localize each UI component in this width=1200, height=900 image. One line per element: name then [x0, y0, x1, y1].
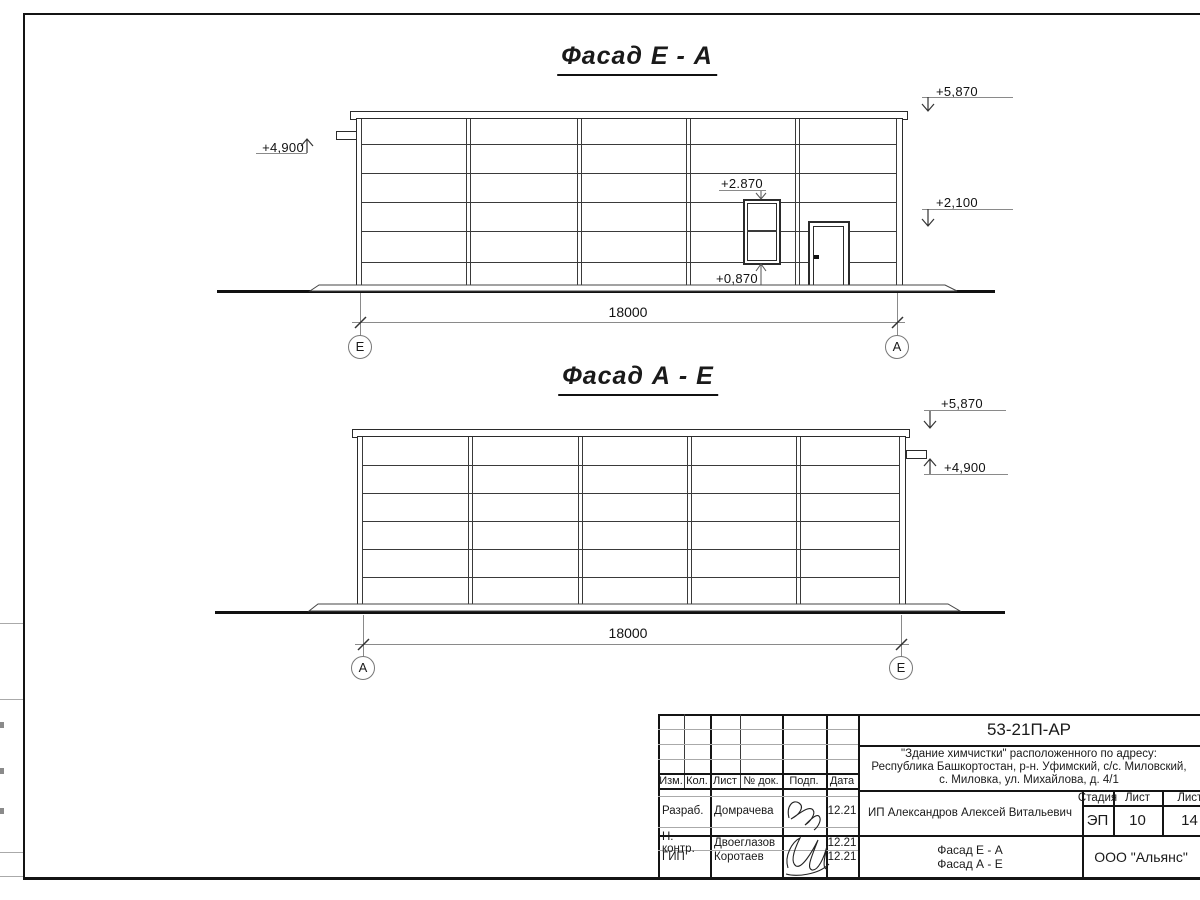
facade1-roof-pipe: [336, 131, 357, 140]
signature-1: [788, 802, 820, 830]
stamp-row-date: 12.21: [826, 836, 858, 850]
stamp-sheets-value: 14: [1162, 805, 1200, 835]
signature-2: [786, 838, 829, 875]
facade2-roof-pipe: [906, 450, 927, 459]
facade2-axis-right: Е: [889, 656, 913, 680]
stamp-address: "Здание химчистки" расположенного по адр…: [858, 745, 1200, 790]
facade1-window-divider: [747, 230, 777, 232]
stamp-client: ИП Александров Алексей Витальевич: [858, 790, 1082, 835]
facade2-mark-4900: +4,900: [944, 460, 986, 475]
stamp-stage-label: Стадия: [1082, 790, 1113, 805]
stamp-col-podp: Подп.: [782, 773, 826, 788]
stamp-row-role: ГИП: [662, 850, 709, 864]
stamp-row-name: Двоеглазов: [714, 836, 780, 850]
facade1-mark-0870: +0,870: [716, 271, 758, 286]
facade1-door-handle: [814, 255, 819, 259]
stamp-drawing-title: Фасад Е - А Фасад А - Е: [858, 835, 1082, 878]
stamp-row-name: Коротаев: [714, 850, 780, 864]
facade1-window-inner: [747, 203, 777, 261]
facade1-axis-right: А: [885, 335, 909, 359]
stamp-col-ndok: № док.: [740, 773, 782, 788]
stamp-sheets-label: Листов: [1162, 790, 1200, 805]
stamp-col-izm: Изм.: [658, 773, 684, 788]
stamp-company: ООО "Альянс": [1082, 835, 1200, 878]
stamp-col-data: Дата: [826, 773, 858, 788]
facade1-mark-2100: +2,100: [936, 195, 978, 210]
stamp-doc-code: 53-21П-АР: [858, 714, 1200, 745]
facade2-dim-text: 18000: [609, 625, 648, 641]
facade2-dim-line: [355, 644, 909, 645]
facade1-ground-line: [217, 290, 995, 293]
stamp-col-list: Лист: [710, 773, 740, 788]
stamp-row-date: 12.21: [826, 850, 858, 864]
facade1-dim-text: 18000: [609, 304, 648, 320]
drawing-sheet: Фасад Е - А +4,900: [0, 0, 1200, 900]
stamp-row-role: Разраб.: [662, 803, 709, 819]
facade1-mark-2870: +2.870: [721, 176, 763, 191]
stamp-stage-value: ЭП: [1082, 805, 1113, 835]
facade2-title: Фасад А - Е: [558, 362, 718, 396]
stamp-row-role: Н. контр.: [662, 836, 709, 850]
stamp-sheet-value: 10: [1113, 805, 1162, 835]
facade1-dim-line: [352, 322, 905, 323]
facade1-axis-left: Е: [348, 335, 372, 359]
facade2-ground-line: [215, 611, 1005, 614]
stamp-sheet-label: Лист: [1113, 790, 1162, 805]
frame-left: [23, 13, 25, 879]
facade1-door-sill: [804, 288, 852, 289]
facade2-axis-left: А: [351, 656, 375, 680]
facade1-title: Фасад Е - А: [557, 42, 717, 76]
stamp-row-name: Домрачева: [714, 803, 780, 819]
stamp-row-date: 12.21: [826, 803, 858, 819]
stamp-col-kol: Кол.: [684, 773, 710, 788]
facade2-mark-5870: +5,870: [941, 396, 983, 411]
frame-top: [23, 13, 1200, 15]
